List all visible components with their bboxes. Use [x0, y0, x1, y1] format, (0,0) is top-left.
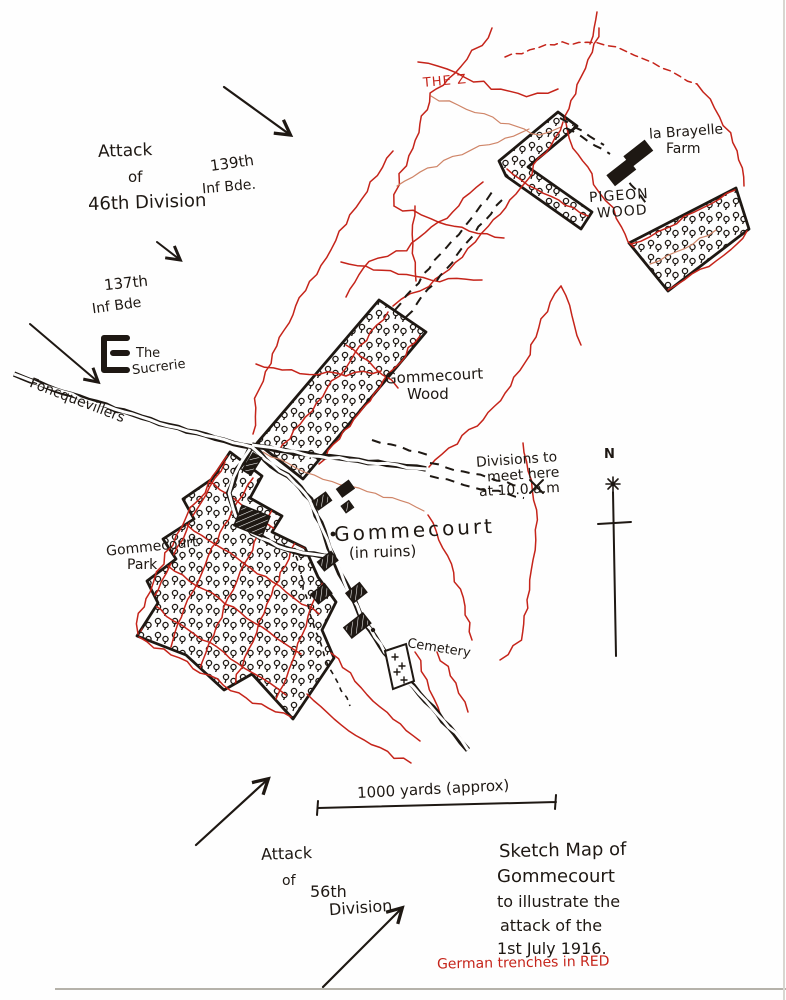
- label-gommecourt-wood: Wood: [407, 387, 449, 402]
- village-building: [341, 501, 353, 513]
- label-la-brayelle-farm: Farm: [666, 142, 701, 156]
- legend-german-trenches: German trenches in RED: [437, 954, 610, 971]
- label-the-z: THE Z: [423, 73, 468, 90]
- sucrerie-building: [104, 338, 127, 370]
- village-building: [336, 480, 354, 497]
- label-attack-46: 46th Division: [88, 192, 207, 214]
- map-title-caption: to illustrate the: [497, 894, 620, 910]
- label-attack-46: of: [128, 170, 142, 185]
- label-compass-n: N: [604, 448, 615, 461]
- compass-north: [598, 477, 631, 656]
- label-sucrerie: The: [136, 347, 160, 360]
- woods: [137, 112, 749, 719]
- map-title-caption: Sketch Map of: [499, 841, 627, 861]
- label-137-bde: 137th: [103, 274, 148, 294]
- attack-arrow-46: [157, 242, 179, 259]
- label-gommecourt-park: Park: [127, 558, 157, 572]
- label-attack-56: 56th: [310, 884, 347, 900]
- map-title-caption: Gommecourt: [497, 868, 615, 886]
- scan-edge-right: [783, 0, 785, 1000]
- scan-edge-bottom: [55, 988, 786, 990]
- label-attack-56: Attack: [261, 845, 313, 863]
- label-divisions-meet: at 10.0 a.m: [479, 481, 560, 499]
- attack-arrow-139: [224, 87, 289, 134]
- label-attack-56: of: [282, 874, 296, 888]
- attack-arrow-137: [30, 324, 97, 381]
- village-building: [344, 613, 371, 638]
- label-pigeon-wood: WOOD: [597, 203, 649, 221]
- attack-arrow-56b: [323, 909, 401, 987]
- scale-bar: [317, 795, 556, 815]
- sketch-map-page: Attack of 46th Division 139th Inf Bde. 1…: [0, 0, 786, 1000]
- label-attack-56: Division: [329, 898, 393, 918]
- label-gommecourt-village: (in ruins): [349, 544, 417, 561]
- map-title-caption: attack of the: [500, 918, 602, 934]
- label-attack-46: Attack: [98, 142, 153, 161]
- attack-arrow-56a: [196, 780, 267, 845]
